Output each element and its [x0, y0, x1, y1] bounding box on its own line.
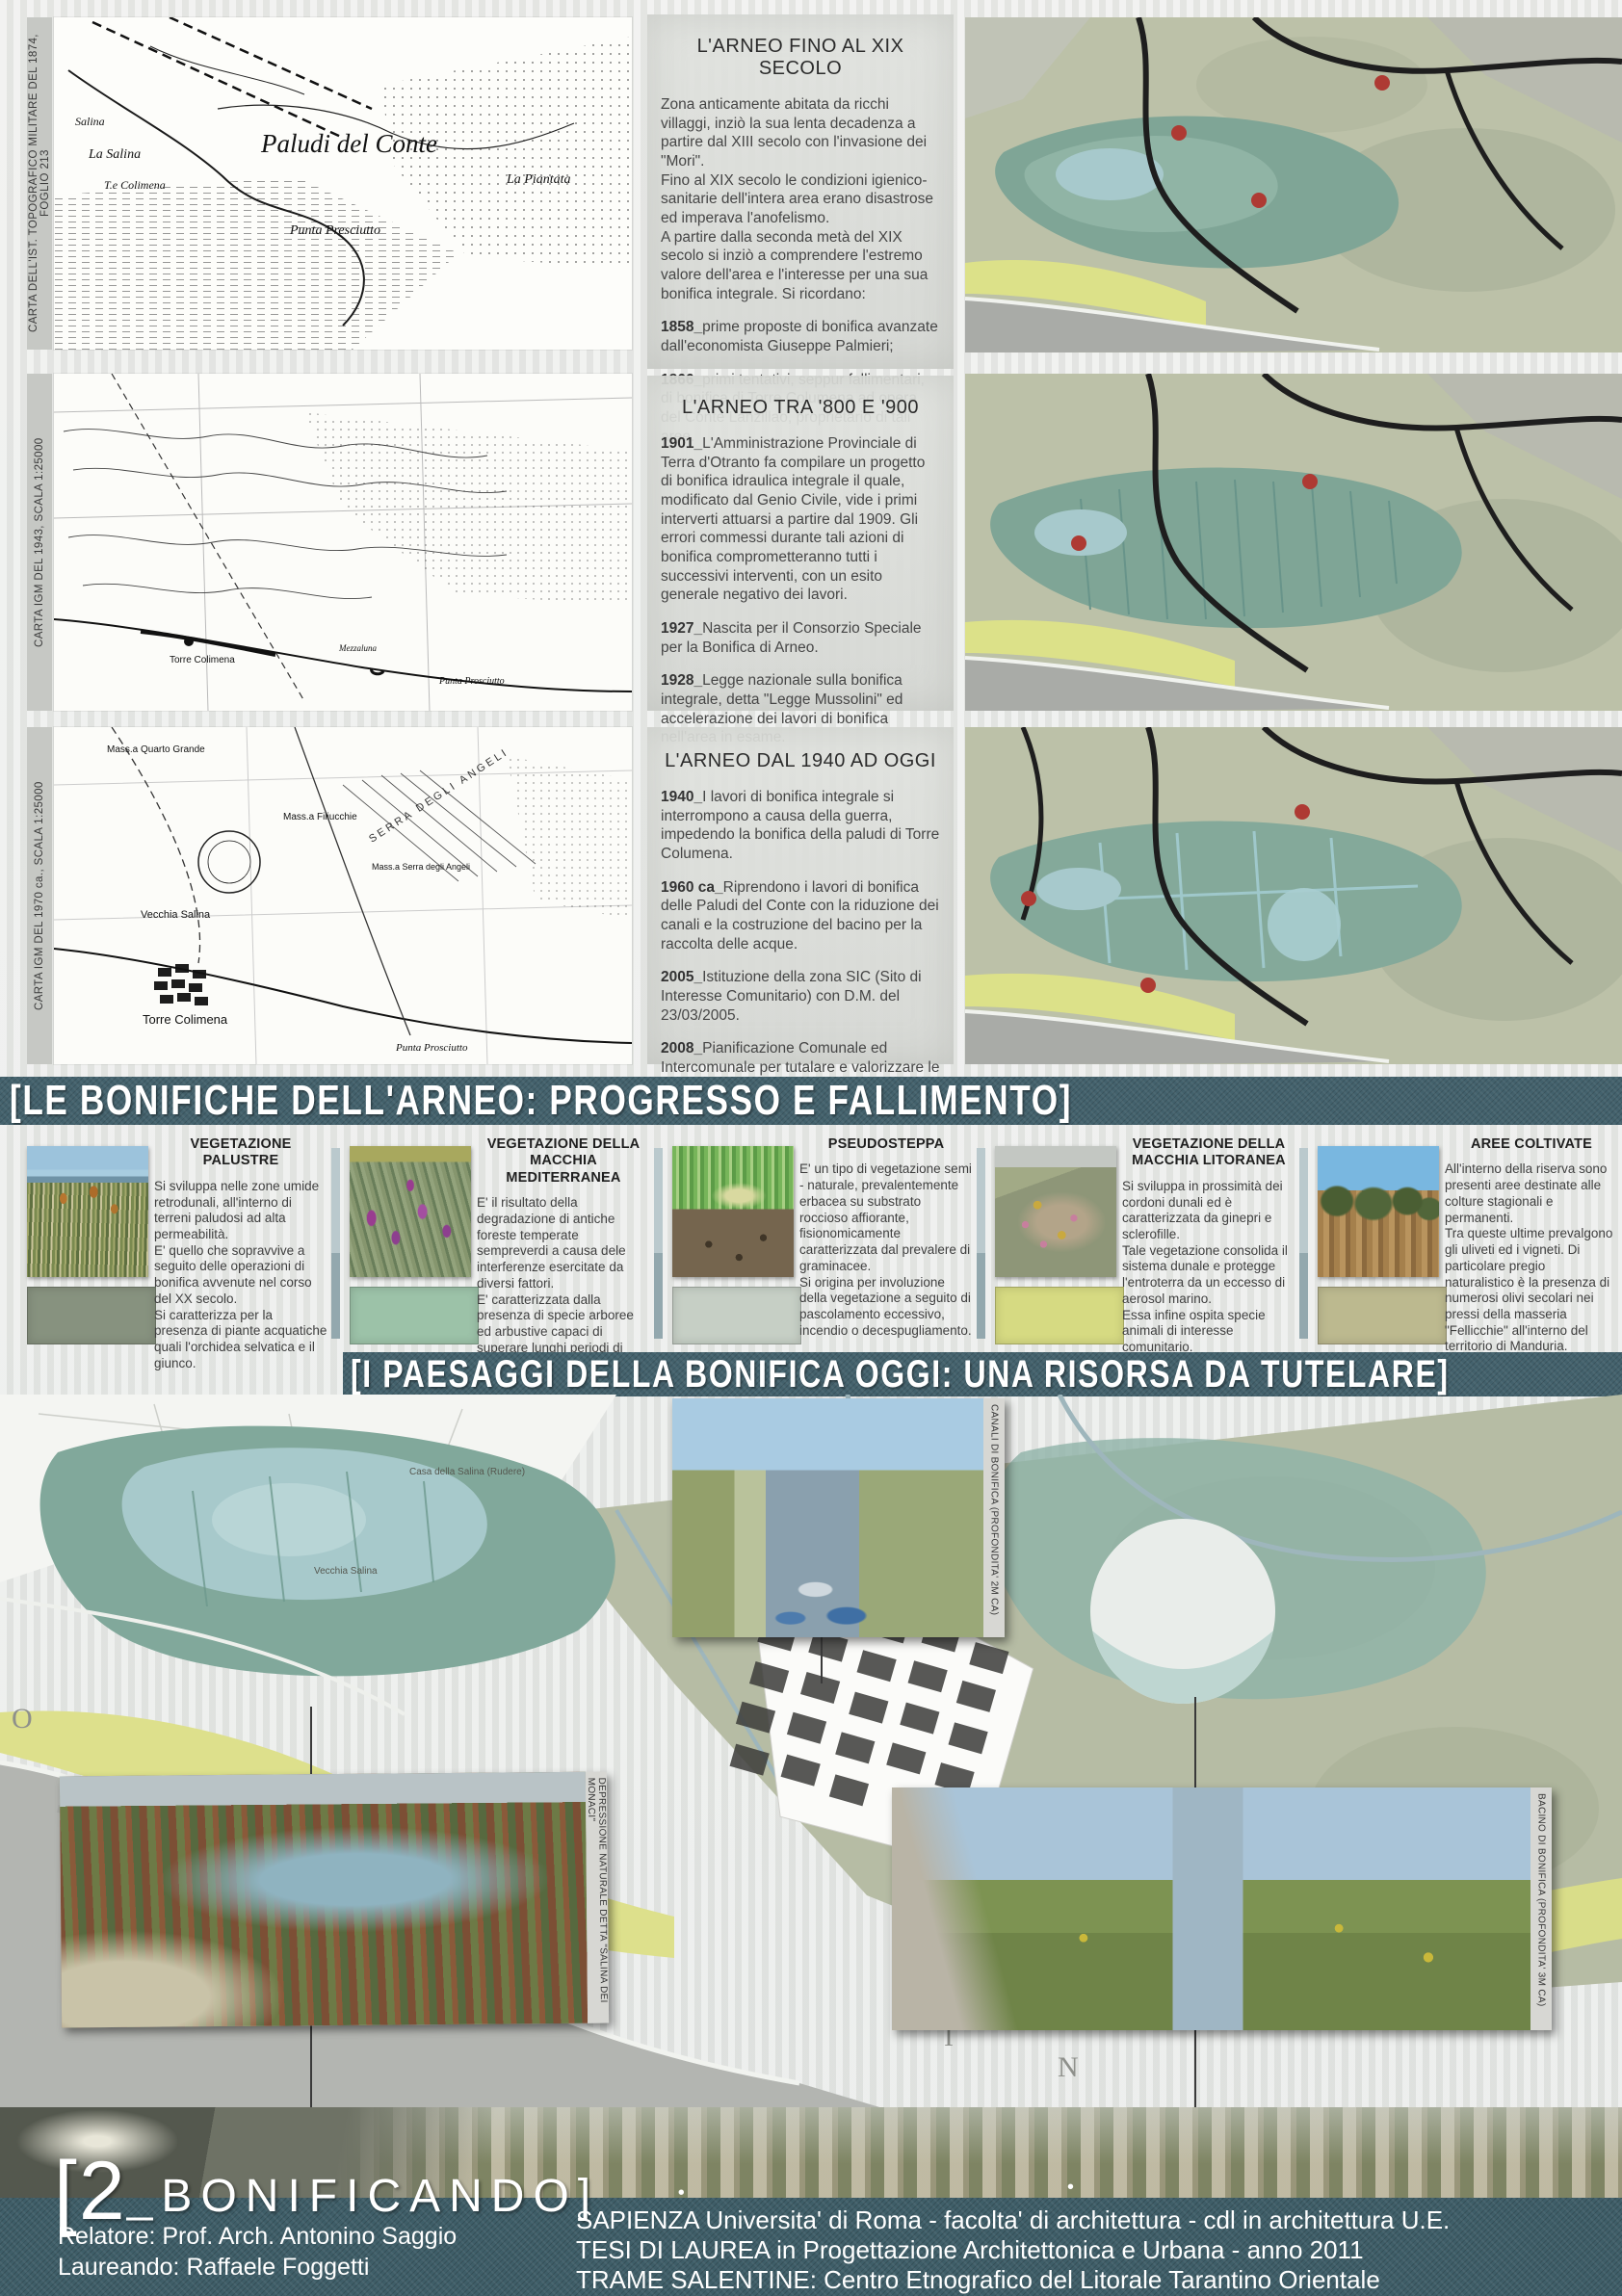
veg-title: AREE COLTIVATE: [1445, 1136, 1618, 1153]
footer-project-line: TRAME SALENTINE: Centro Etnografico del …: [576, 2265, 1380, 2295]
historical-map-1874-drawing: Salina La Salina T.e Colimena Paludi del…: [54, 17, 632, 350]
entry-year: 1960 ca_: [661, 879, 723, 896]
timeline-entry: 2005_Istituzione della zona SIC (Sito di…: [661, 968, 940, 1025]
veg-swatch-coltivate: [1318, 1287, 1447, 1344]
veg-photo-litoranea: [995, 1146, 1116, 1277]
text-column-3: L'ARNEO DAL 1940 AD OGGI 1940_I lavori d…: [661, 750, 940, 1115]
veg-textblock: VEGETAZIONE DELLA MACCHIA LITORANEA Si s…: [1122, 1136, 1295, 1356]
photo-bacino-caption: BACINO DI BONIFICA (PROFONDITA' 3M CA): [1530, 1787, 1552, 2030]
veg-text: Si sviluppa in prossimità dei cordoni du…: [1122, 1179, 1295, 1356]
entry-year: 1927_: [661, 620, 702, 637]
timeline-entry: 1960 ca_Riprendono i lavori di bonifica …: [661, 878, 940, 954]
text-panel-3: L'ARNEO DAL 1940 AD OGGI 1940_I lavori d…: [647, 727, 954, 1064]
sea-letter-o: O: [12, 1703, 33, 1735]
map-caption-1970: CARTA IGM DEL 1970 ca., SCALA 1:25000: [27, 727, 52, 1064]
timeline-entry: 1927_Nascita per il Consorzio Speciale p…: [661, 619, 940, 657]
veg-title: PSEUDOSTEPPA: [799, 1136, 973, 1153]
map-label: Mezzaluna: [338, 643, 377, 653]
veg-textblock: VEGETAZIONE DELLA MACCHIA MEDITERRANEA E…: [477, 1136, 650, 1389]
veg-text: Si sviluppa nelle zone umide retrodunali…: [154, 1179, 327, 1372]
map-label: Mass.a Quarto Grande: [107, 744, 205, 755]
leader-line: [821, 1637, 823, 1683]
section-heading: L'ARNEO DAL 1940 AD OGGI: [661, 750, 940, 772]
veg-photo-pseudosteppa: [672, 1146, 794, 1277]
plan-map-2: [965, 374, 1622, 716]
footer-laureando: Laureando: Raffaele Foggetti: [58, 2254, 369, 2282]
text-panel-2: L'ARNEO TRA '800 E '900 1901_L'Amministr…: [647, 376, 954, 711]
veg-title: VEGETAZIONE DELLA MACCHIA MEDITERRANEA: [477, 1136, 650, 1187]
veg-swatch-palustre: [27, 1287, 156, 1344]
veg-textblock: PSEUDOSTEPPA E' un tipo di vegetazione s…: [799, 1136, 973, 1339]
footer-thesis-line: TESI DI LAUREA in Progettazione Architet…: [576, 2235, 1364, 2265]
historical-map-1970-drawing: Mass.a Quarto Grande Mass.a Filiucchie S…: [54, 727, 632, 1064]
map-label: Punta Prosciutto: [395, 1042, 468, 1054]
poster-title-text: _BONIFICANDO]: [127, 2171, 599, 2222]
photo-salina-image: [60, 1772, 588, 2028]
veg-title: VEGETAZIONE DELLA MACCHIA LITORANEA: [1122, 1136, 1295, 1170]
timeline-entry: 1901_L'Amministrazione Provinciale di Te…: [661, 434, 940, 605]
poster-number-title: [2_BONIFICANDO]: [54, 2157, 599, 2225]
veg-text: E' un tipo di vegetazione semi - natural…: [799, 1161, 973, 1339]
map-label: T.e Colimena: [104, 178, 166, 192]
photo-bacino-bonifica: BACINO DI BONIFICA (PROFONDITA' 3M CA): [892, 1787, 1552, 2030]
entry-year: 1928_: [661, 672, 702, 689]
entry-text: prime proposte di bonifica avanzate dall…: [661, 319, 938, 354]
photo-canali-bonifica: CANALI DI BONIFICA (PROFONDITA' 2M CA): [672, 1398, 1005, 1637]
plan-map-1: [965, 17, 1622, 357]
leader-line: [310, 1707, 312, 1774]
veg-column-litoranea: VEGETAZIONE DELLA MACCHIA LITORANEA Si s…: [976, 1129, 1299, 1352]
text-column-2: L'ARNEO TRA '800 E '900 1901_L'Amministr…: [661, 397, 940, 747]
intro-paragraph: Zona anticamente abitata da ricchi villa…: [661, 95, 940, 303]
veg-swatch-mediterranea: [350, 1287, 479, 1344]
text-panel-1: L'ARNEO FINO AL XIX SECOLO Zona anticame…: [647, 14, 954, 369]
entry-year: 1858_: [661, 319, 702, 335]
historical-map-1943-drawing: Torre Colimena Mezzaluna Punta Prosciutt…: [54, 374, 632, 711]
leader-line: [1194, 1697, 1196, 1787]
maplabel-vecchia-salina: Vecchia Salina: [314, 1566, 378, 1577]
banner-reclamation-text: [LE BONIFICHE DELL'ARNEO: PROGRESSO E FA…: [10, 1077, 1072, 1125]
map-label: La Piantata: [506, 172, 571, 187]
map-label: La Salina: [88, 147, 141, 162]
veg-photo-mediterranea: [350, 1146, 471, 1277]
map-label: Punta Prosciutto: [438, 676, 505, 687]
map-label: Vecchia Salina: [141, 909, 211, 921]
veg-textblock: AREE COLTIVATE All'interno della riserva…: [1445, 1136, 1618, 1355]
entry-text: L'Amministrazione Provinciale di Terra d…: [661, 435, 925, 603]
entry-year: 2008_: [661, 1040, 702, 1057]
map-label: Mass.a Serra degli Angeli: [372, 862, 470, 872]
historical-map-1874: Salina La Salina T.e Colimena Paludi del…: [54, 17, 632, 350]
banner-reclamation: [LE BONIFICHE DELL'ARNEO: PROGRESSO E FA…: [0, 1077, 1622, 1125]
banner-landscapes-text: [I PAESAGGI DELLA BONIFICA OGGI: UNA RIS…: [351, 1352, 1450, 1396]
thesis-poster: CARTA DELL'IST. TOPOGRAFICO MILITARE DEL…: [0, 0, 1622, 2296]
photo-canali-caption: CANALI DI BONIFICA (PROFONDITA' 2M CA): [983, 1398, 1005, 1637]
map-label: Torre Colimena: [170, 655, 235, 665]
map-label: Punta Presciutto: [289, 223, 380, 238]
veg-text: All'interno della riserva sono presenti …: [1445, 1161, 1618, 1355]
plan-map-1-drawing: [965, 17, 1622, 352]
map-label: Paludi del Conte: [260, 129, 437, 158]
photo-salina-caption: DEPRESSIONE NATURALE DETTA "SALINA DEI M…: [586, 1772, 609, 2023]
veg-column-coltivate: AREE COLTIVATE All'interno della riserva…: [1298, 1129, 1622, 1352]
plan-map-3-drawing: [965, 727, 1622, 1064]
historical-map-1943: Torre Colimena Mezzaluna Punta Prosciutt…: [54, 374, 632, 711]
footer-relatore: Relatore: Prof. Arch. Antonino Saggio: [58, 2223, 457, 2251]
photo-salina-monaci: DEPRESSIONE NATURALE DETTA "SALINA DEI M…: [60, 1772, 609, 2028]
veg-column-pseudosteppa: PSEUDOSTEPPA E' un tipo di vegetazione s…: [653, 1129, 977, 1352]
entry-year: 2005_: [661, 969, 702, 985]
photo-bacino-image: [892, 1787, 1530, 2030]
timeline-entry: 1858_prime proposte di bonifica avanzate…: [661, 318, 940, 355]
plan-map-3: [965, 727, 1622, 1069]
footer-university-line: SAPIENZA Universita' di Roma - facolta' …: [576, 2205, 1450, 2235]
entry-text: I lavori di bonifica integrale si interr…: [661, 789, 939, 862]
veg-column-palustre: VEGETAZIONE PALUSTRE Si sviluppa nelle z…: [8, 1129, 331, 1352]
map-label: Salina: [75, 115, 105, 128]
map-label: Mass.a Filiucchie: [283, 812, 357, 822]
section-heading: L'ARNEO TRA '800 E '900: [661, 397, 940, 419]
veg-title: VEGETAZIONE PALUSTRE: [154, 1136, 327, 1170]
veg-column-mediterranea: VEGETAZIONE DELLA MACCHIA MEDITERRANEA E…: [330, 1129, 654, 1352]
historical-map-1970: Mass.a Quarto Grande Mass.a Filiucchie S…: [54, 727, 632, 1064]
entry-year: 1940_: [661, 789, 702, 805]
map-caption-1943: CARTA IGM DEL 1943, SCALA 1:25000: [27, 374, 52, 711]
section-heading: L'ARNEO FINO AL XIX SECOLO: [661, 36, 940, 80]
veg-swatch-litoranea: [995, 1287, 1124, 1344]
sea-letter-n: N: [1058, 2051, 1079, 2084]
entry-year: 1901_: [661, 435, 702, 452]
photo-canali-image: [672, 1398, 983, 1637]
veg-swatch-pseudosteppa: [672, 1287, 801, 1344]
banner-landscapes: [I PAESAGGI DELLA BONIFICA OGGI: UNA RIS…: [343, 1352, 1622, 1396]
timeline-entry: 1940_I lavori di bonifica integrale si i…: [661, 788, 940, 864]
veg-photo-palustre: [27, 1146, 148, 1277]
map-label: Torre Colimena: [143, 1012, 228, 1027]
map-caption-1874: CARTA DELL'IST. TOPOGRAFICO MILITARE DEL…: [27, 17, 52, 350]
plan-map-2-drawing: [965, 374, 1622, 711]
veg-photo-coltivate: [1318, 1146, 1439, 1277]
maplabel-casa-salina: Casa della Salina (Rudere): [409, 1467, 525, 1477]
veg-textblock: VEGETAZIONE PALUSTRE Si sviluppa nelle z…: [154, 1136, 327, 1372]
